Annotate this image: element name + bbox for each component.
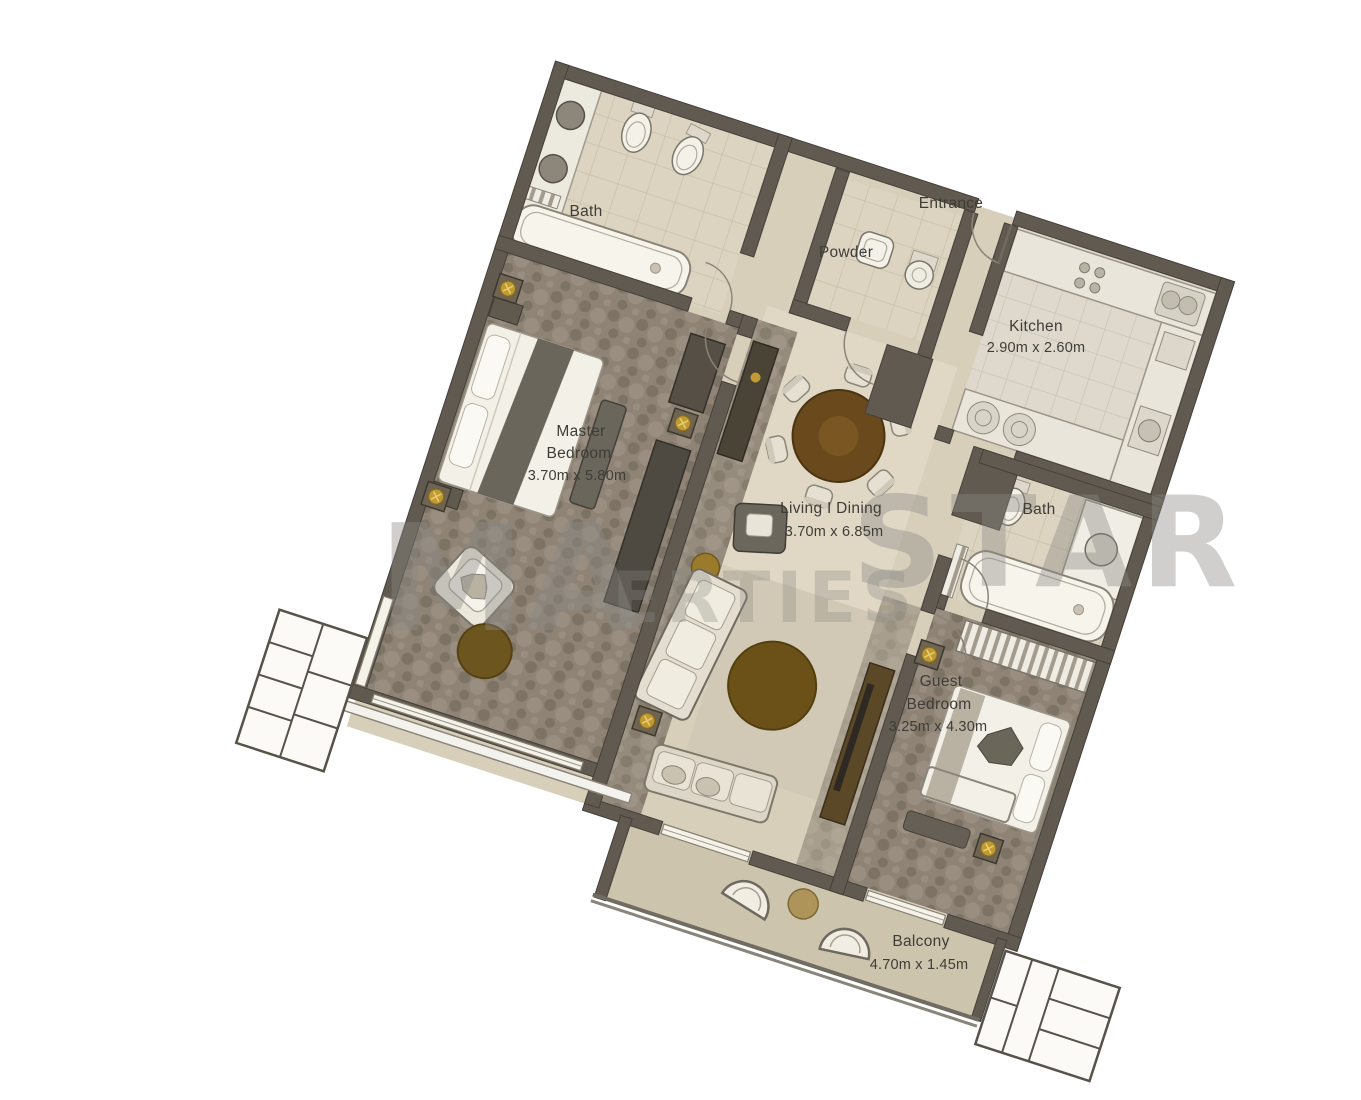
watermark-fragment-left: MA <box>378 493 640 665</box>
living-dining-label: Living I Dining <box>780 500 882 517</box>
guest-bedroom-dims: 3.25m x 4.30m <box>889 719 988 735</box>
balcony-dims: 4.70m x 1.45m <box>870 957 969 973</box>
living-dining-dims: 3.70m x 6.85m <box>785 524 884 540</box>
powder-label: Powder <box>819 244 873 261</box>
kitchen-label: Kitchen <box>1009 318 1063 335</box>
entrance-label: Entrance <box>919 195 983 212</box>
master-bedroom-label-1: Master <box>556 423 605 440</box>
guest-bath-label: Bath <box>1022 501 1055 518</box>
master-bedroom-dims: 3.70m x 5.80m <box>528 468 627 484</box>
watermark-fragment-bottom: ERTIES <box>612 557 919 639</box>
floorplan-drawing: MA STAR ERTIES Bath Powder Entrance Kitc… <box>0 0 1361 1100</box>
kitchen-dims: 2.90m x 2.60m <box>987 340 1086 356</box>
left-balcony-frame <box>236 610 367 772</box>
guest-bedroom-label-1: Guest <box>920 673 963 690</box>
balcony-label: Balcony <box>892 933 949 950</box>
master-bedroom-label-2: Bedroom <box>547 445 612 462</box>
guest-bedroom-label-2: Bedroom <box>907 696 972 713</box>
master-bath-label: Bath <box>569 203 602 220</box>
floorplan-canvas: MA STAR ERTIES Bath Powder Entrance Kitc… <box>0 0 1361 1100</box>
